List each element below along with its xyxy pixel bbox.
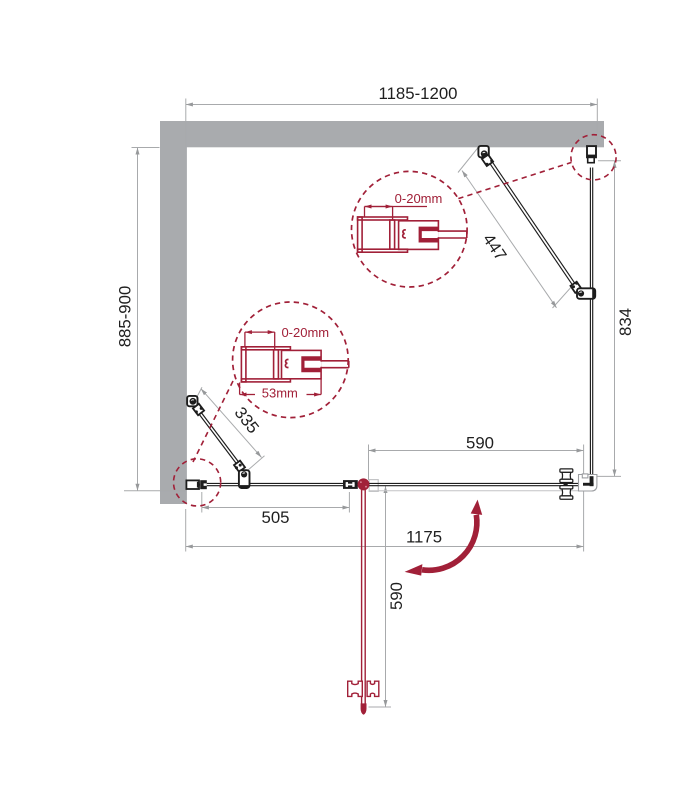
svg-text:885-900: 885-900 [115,286,134,348]
svg-text:590: 590 [387,582,406,610]
svg-text:1175: 1175 [406,528,442,547]
svg-text:53mm: 53mm [262,386,298,401]
svg-text:505: 505 [262,508,290,527]
svg-text:590: 590 [466,434,494,453]
svg-text:0-20mm: 0-20mm [281,325,329,340]
svg-text:0-20mm: 0-20mm [395,191,443,206]
svg-text:834: 834 [616,308,635,336]
svg-text:1185-1200: 1185-1200 [378,84,457,103]
